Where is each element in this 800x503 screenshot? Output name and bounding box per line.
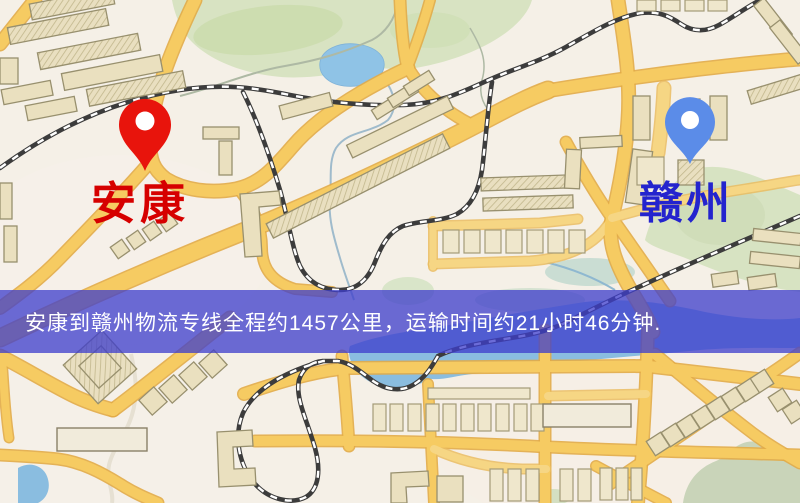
origin-pin-hole	[136, 112, 155, 131]
map-canvas: 安康 赣州	[0, 0, 800, 503]
destination-pin-hole	[681, 111, 699, 129]
map-viewport[interactable]: 安康 赣州 安康到赣州物流专线全程约1457公里，运输时间约21小时46分钟.	[0, 0, 800, 503]
destination-label: 赣州	[639, 179, 733, 228]
route-info-text: 安康到赣州物流专线全程约1457公里，运输时间约21小时46分钟.	[25, 307, 661, 337]
route-info-banner: 安康到赣州物流专线全程约1457公里，运输时间约21小时46分钟.	[0, 290, 800, 353]
origin-label: 安康	[91, 178, 189, 229]
